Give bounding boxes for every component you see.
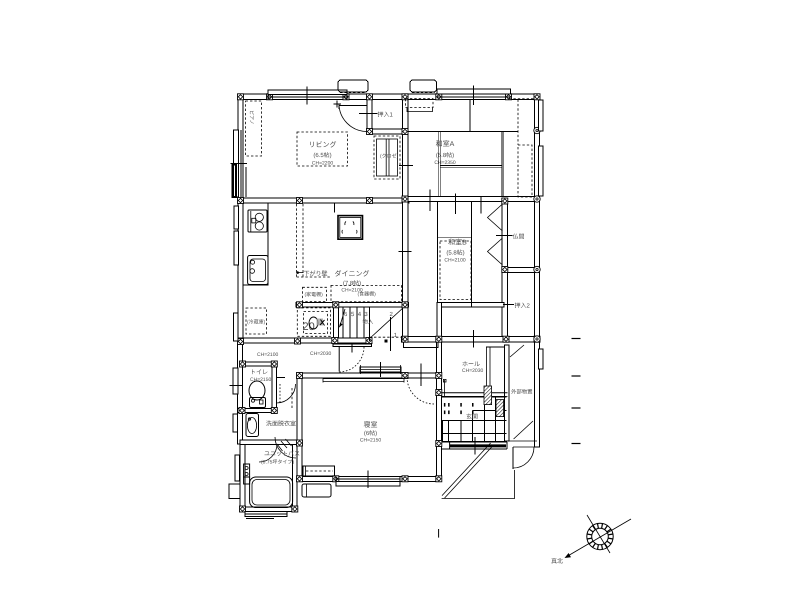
svg-text:CH=2030: CH=2030 [310,351,331,357]
svg-text:押入2: 押入2 [515,302,531,310]
svg-text:玄関: 玄関 [466,413,478,421]
svg-text:仏間: 仏間 [513,233,525,241]
svg-text:(7.8帖): (7.8帖) [343,279,361,287]
svg-text:外部物置: 外部物置 [511,389,533,396]
svg-text:トイレ: トイレ [250,369,268,376]
svg-text:ホール: ホール [462,361,480,368]
svg-text:CH=2150: CH=2150 [250,377,271,383]
svg-text:押入1: 押入1 [378,111,394,119]
svg-text:CH=2350: CH=2350 [434,160,455,166]
svg-text:ピアノ: ピアノ [248,110,255,125]
svg-text:CH=2100: CH=2100 [444,258,465,264]
svg-text:(食器棚): (食器棚) [358,291,377,298]
svg-text:CH=2150: CH=2150 [360,438,381,444]
svg-text:和室A: 和室A [436,140,455,148]
svg-text:CH=2200: CH=2200 [312,161,333,167]
svg-text:ユニットバス: ユニットバス [264,451,300,458]
svg-text:(クロゼ): (クロゼ) [380,153,399,160]
svg-text:ダイニング: ダイニング [335,270,370,278]
svg-text:(6.5帖): (6.5帖) [313,151,331,159]
svg-text:真北: 真北 [551,557,563,565]
svg-text:和室B: 和室B [448,239,467,247]
svg-text:寝室: 寝室 [364,421,378,429]
svg-text:リビング: リビング [309,141,337,149]
svg-text:下がり壁: 下がり壁 [304,270,328,278]
svg-text:CH=2100: CH=2100 [257,352,278,358]
svg-text:(5.8帖): (5.8帖) [446,249,464,257]
svg-text:(冷蔵庫): (冷蔵庫) [247,319,266,326]
svg-text:洗面脱衣室: 洗面脱衣室 [266,420,296,428]
svg-text:(6帖): (6帖) [364,429,377,437]
svg-text:CH=2030: CH=2030 [462,368,483,374]
svg-text:(家電棚): (家電棚) [305,291,324,298]
svg-text:(6.8帖): (6.8帖) [436,151,454,159]
svg-text:(0.75坪タイプ): (0.75坪タイプ) [261,459,294,466]
svg-text:物入: 物入 [363,319,374,326]
